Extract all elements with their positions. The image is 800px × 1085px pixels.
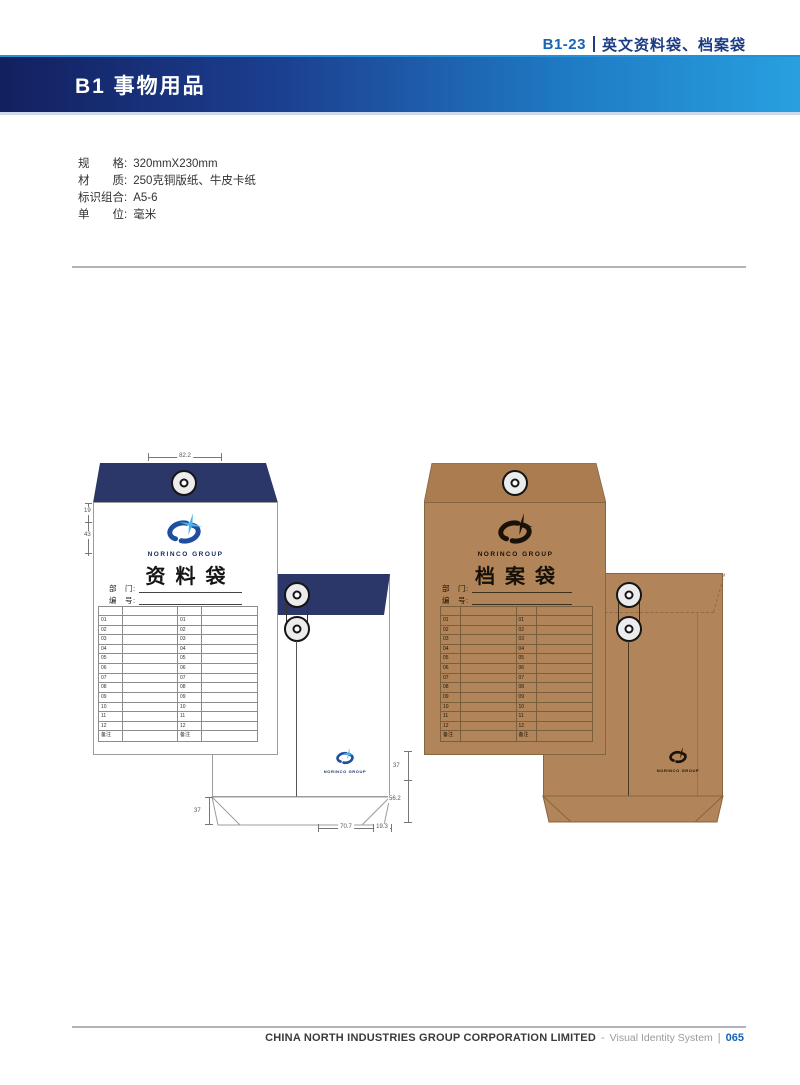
- index-table-cell: [537, 703, 593, 713]
- brand-wordmark: NORINCO GROUP: [646, 768, 710, 773]
- spec-row-size: 规 格:320mmX230mm: [78, 156, 256, 173]
- spec-value: 320mmX230mm: [133, 158, 217, 170]
- footer-page-number: 065: [726, 1032, 744, 1044]
- index-table-header-cell: [517, 607, 537, 616]
- tie-string: [628, 641, 629, 797]
- dim-label: 70.7: [338, 824, 354, 830]
- index-table-cell: [537, 731, 593, 741]
- dim-bottom-widths: 70.7 19.3: [318, 823, 392, 834]
- index-table-cell: 07: [441, 674, 461, 684]
- index-table-cell: [123, 626, 178, 636]
- write-line: [472, 591, 572, 593]
- index-table-cell: [461, 703, 517, 713]
- index-table-cell: 08: [99, 683, 123, 693]
- index-table-cell: 12: [517, 722, 537, 732]
- index-table-cell: 06: [99, 664, 123, 674]
- index-table-cell: 02: [178, 626, 202, 636]
- section-title: B1 事物用品: [75, 70, 206, 100]
- index-table-cell: 03: [178, 635, 202, 645]
- index-table-cell: [537, 712, 593, 722]
- norinco-logo-icon: [490, 513, 540, 551]
- index-table-cell: 03: [99, 635, 123, 645]
- index-table-cell: 05: [517, 654, 537, 664]
- index-table-cell: 08: [517, 683, 537, 693]
- number-label: 编 号:: [442, 595, 469, 606]
- index-table-cell: [202, 693, 257, 703]
- index-table-cell: [123, 683, 178, 693]
- index-table-cell: 11: [99, 712, 123, 722]
- number-label: 编 号:: [109, 595, 136, 606]
- dim-label: 19: [83, 507, 92, 515]
- index-table-cell: 12: [178, 722, 202, 732]
- index-table-header-cell: [461, 607, 517, 616]
- index-table-cell: 02: [441, 626, 461, 636]
- index-table-cell: [202, 712, 257, 722]
- index-table-cell: 08: [178, 683, 202, 693]
- index-table-cell: [202, 616, 257, 626]
- index-table-header-cell: [99, 607, 123, 616]
- index-table-cell: 05: [99, 654, 123, 664]
- brand-wordmark: NORINCO GROUP: [448, 551, 583, 558]
- index-table-cell: [461, 722, 517, 732]
- index-table-cell: [537, 683, 593, 693]
- spec-label: 材 质:: [78, 175, 127, 187]
- dim-label: 82.2: [177, 453, 193, 459]
- number-field: 编 号:: [109, 595, 242, 606]
- header-divider: [593, 36, 595, 52]
- dept-label: 部 门:: [109, 583, 136, 594]
- index-table-cell: [202, 722, 257, 732]
- norinco-logo-icon: [159, 513, 209, 551]
- index-table-cell: 06: [517, 664, 537, 674]
- index-table-cell: [537, 626, 593, 636]
- index-table-cell: [461, 674, 517, 684]
- index-table-cell: [461, 616, 517, 626]
- spec-value: 250克铜版纸、牛皮卡纸: [133, 175, 256, 187]
- spec-label: 标识组合:: [78, 192, 127, 204]
- index-table-cell: [123, 712, 178, 722]
- page-code: B1-23: [543, 36, 586, 53]
- footer-divider-line: [72, 1026, 746, 1028]
- dim-right-heights: 37 56.2: [388, 751, 412, 823]
- index-table-cell: 备注: [99, 731, 123, 741]
- dept-field: 部 门:: [109, 583, 242, 594]
- index-table-header-cell: [441, 607, 461, 616]
- index-table-cell: 05: [441, 654, 461, 664]
- tie-button: [616, 616, 642, 642]
- index-table-cell: 01: [441, 616, 461, 626]
- index-table-cell: 备注: [441, 731, 461, 741]
- index-table-cell: 备注: [178, 731, 202, 741]
- index-table-cell: 10: [99, 703, 123, 713]
- index-table-cell: 07: [517, 674, 537, 684]
- index-table-cell: 01: [99, 616, 123, 626]
- index-table-cell: [123, 703, 178, 713]
- section-title-bar: B1 事物用品: [0, 55, 800, 115]
- index-table-cell: [537, 664, 593, 674]
- index-table-cell: [123, 674, 178, 684]
- index-table-cell: 11: [517, 712, 537, 722]
- index-table-cell: [123, 654, 178, 664]
- dim-bottom-flap-height: 37: [192, 797, 210, 825]
- index-table-cell: [123, 693, 178, 703]
- index-table-cell: 04: [178, 645, 202, 655]
- spec-label: 规 格:: [78, 158, 127, 170]
- specs-block: 规 格:320mmX230mm 材 质:250克铜版纸、牛皮卡纸 标识组合:A5…: [78, 156, 256, 224]
- index-table-cell: 11: [441, 712, 461, 722]
- index-table-cell: [123, 645, 178, 655]
- tie-button: [171, 470, 197, 496]
- index-table-cell: 02: [517, 626, 537, 636]
- footer-bar: |: [718, 1032, 721, 1044]
- index-table-cell: [461, 664, 517, 674]
- spec-value: A5-6: [133, 192, 157, 204]
- index-table-cell: [461, 683, 517, 693]
- index-table-cell: [202, 654, 257, 664]
- index-table-cell: 04: [99, 645, 123, 655]
- index-table-cell: [537, 722, 593, 732]
- index-table-cell: 07: [99, 674, 123, 684]
- dim-label: 37: [392, 762, 401, 770]
- index-table-header-cell: [202, 607, 257, 616]
- index-table-cell: [202, 731, 257, 741]
- index-table-cell: 12: [441, 722, 461, 732]
- index-table-cell: [202, 664, 257, 674]
- dim-top-width: 82.2: [148, 452, 222, 463]
- index-table-cell: 10: [441, 703, 461, 713]
- spec-row-logo-combo: 标识组合:A5-6: [78, 190, 256, 207]
- index-table-cell: [461, 654, 517, 664]
- index-table-cell: [202, 683, 257, 693]
- index-table-cell: 07: [178, 674, 202, 684]
- index-table-cell: [202, 645, 257, 655]
- index-table-cell: 05: [178, 654, 202, 664]
- index-table-cell: 03: [441, 635, 461, 645]
- index-table-cell: [123, 664, 178, 674]
- dept-field: 部 门:: [442, 583, 572, 594]
- page-code-header: B1-23 英文资料袋、档案袋: [543, 34, 746, 54]
- dim-label: 37: [193, 807, 202, 815]
- index-table-header-cell: [537, 607, 593, 616]
- divider-line: [72, 266, 746, 268]
- index-table-cell: 02: [99, 626, 123, 636]
- index-table-cell: [123, 616, 178, 626]
- norinco-logo-icon: [665, 747, 691, 767]
- index-table-cell: [537, 693, 593, 703]
- index-table-cell: 09: [441, 693, 461, 703]
- index-table-cell: [202, 703, 257, 713]
- index-table-cell: 09: [99, 693, 123, 703]
- tie-button: [284, 616, 310, 642]
- write-line: [139, 591, 242, 593]
- index-table-cell: [202, 626, 257, 636]
- tie-string: [296, 641, 297, 797]
- tie-button: [284, 582, 310, 608]
- index-table-cell: [461, 645, 517, 655]
- index-table-cell: [537, 654, 593, 664]
- tie-button: [502, 470, 528, 496]
- spec-value: 毫米: [133, 209, 156, 221]
- tie-button: [616, 582, 642, 608]
- index-table-cell: [537, 674, 593, 684]
- index-table: 0101020203030404050506060707080809091010…: [440, 606, 593, 742]
- norinco-logo-icon: [332, 748, 358, 768]
- index-table-cell: 01: [178, 616, 202, 626]
- brand-wordmark: NORINCO GROUP: [313, 769, 377, 774]
- index-table-cell: [461, 635, 517, 645]
- archive-bag-bottom-flap: [541, 795, 725, 824]
- index-table-cell: 09: [178, 693, 202, 703]
- index-table-cell: [461, 626, 517, 636]
- index-table-cell: [461, 731, 517, 741]
- index-table-cell: 10: [178, 703, 202, 713]
- footer-system-name: Visual Identity System: [610, 1032, 713, 1044]
- spec-label: 单 位:: [78, 209, 127, 221]
- index-table-cell: 04: [441, 645, 461, 655]
- index-table-cell: [537, 645, 593, 655]
- index-table-cell: 06: [441, 664, 461, 674]
- footer: CHINA NORTH INDUSTRIES GROUP CORPORATION…: [265, 1032, 744, 1044]
- page-code-title: 英文资料袋、档案袋: [602, 34, 746, 55]
- index-table-cell: [461, 712, 517, 722]
- dept-label: 部 门:: [442, 583, 469, 594]
- index-table-cell: 10: [517, 703, 537, 713]
- index-table-cell: 11: [178, 712, 202, 722]
- index-table-cell: [123, 635, 178, 645]
- index-table-cell: 08: [441, 683, 461, 693]
- index-table-cell: [202, 674, 257, 684]
- index-table-header-cell: [178, 607, 202, 616]
- spec-row-unit: 单 位:毫米: [78, 207, 256, 224]
- index-table-cell: 04: [517, 645, 537, 655]
- vi-manual-page: B1-23 英文资料袋、档案袋 B1 事物用品 规 格:320mmX230mm …: [0, 0, 800, 1085]
- index-table-cell: [461, 693, 517, 703]
- index-table-cell: 09: [517, 693, 537, 703]
- write-line: [139, 603, 242, 605]
- index-table-cell: [202, 635, 257, 645]
- index-table-cell: 12: [99, 722, 123, 732]
- dim-label: 43: [83, 531, 92, 539]
- dim-left-heights: 19 43: [81, 500, 95, 556]
- dim-label: 56.2: [388, 795, 402, 803]
- number-field: 编 号:: [442, 595, 572, 606]
- spec-row-material: 材 质:250克铜版纸、牛皮卡纸: [78, 173, 256, 190]
- write-line: [472, 603, 572, 605]
- index-table-cell: [123, 731, 178, 741]
- brand-wordmark: NORINCO GROUP: [118, 551, 253, 558]
- index-table-cell: 01: [517, 616, 537, 626]
- index-table: 0101020203030404050506060707080809091010…: [98, 606, 258, 742]
- index-table-cell: [123, 722, 178, 732]
- index-table-cell: [537, 616, 593, 626]
- index-table-cell: 06: [178, 664, 202, 674]
- footer-company: CHINA NORTH INDUSTRIES GROUP CORPORATION…: [265, 1032, 596, 1044]
- index-table-header-cell: [123, 607, 178, 616]
- dim-label: 19.3: [374, 824, 390, 830]
- index-table-cell: 03: [517, 635, 537, 645]
- footer-separator: -: [601, 1032, 605, 1044]
- index-table-cell: 备注: [517, 731, 537, 741]
- index-table-cell: [537, 635, 593, 645]
